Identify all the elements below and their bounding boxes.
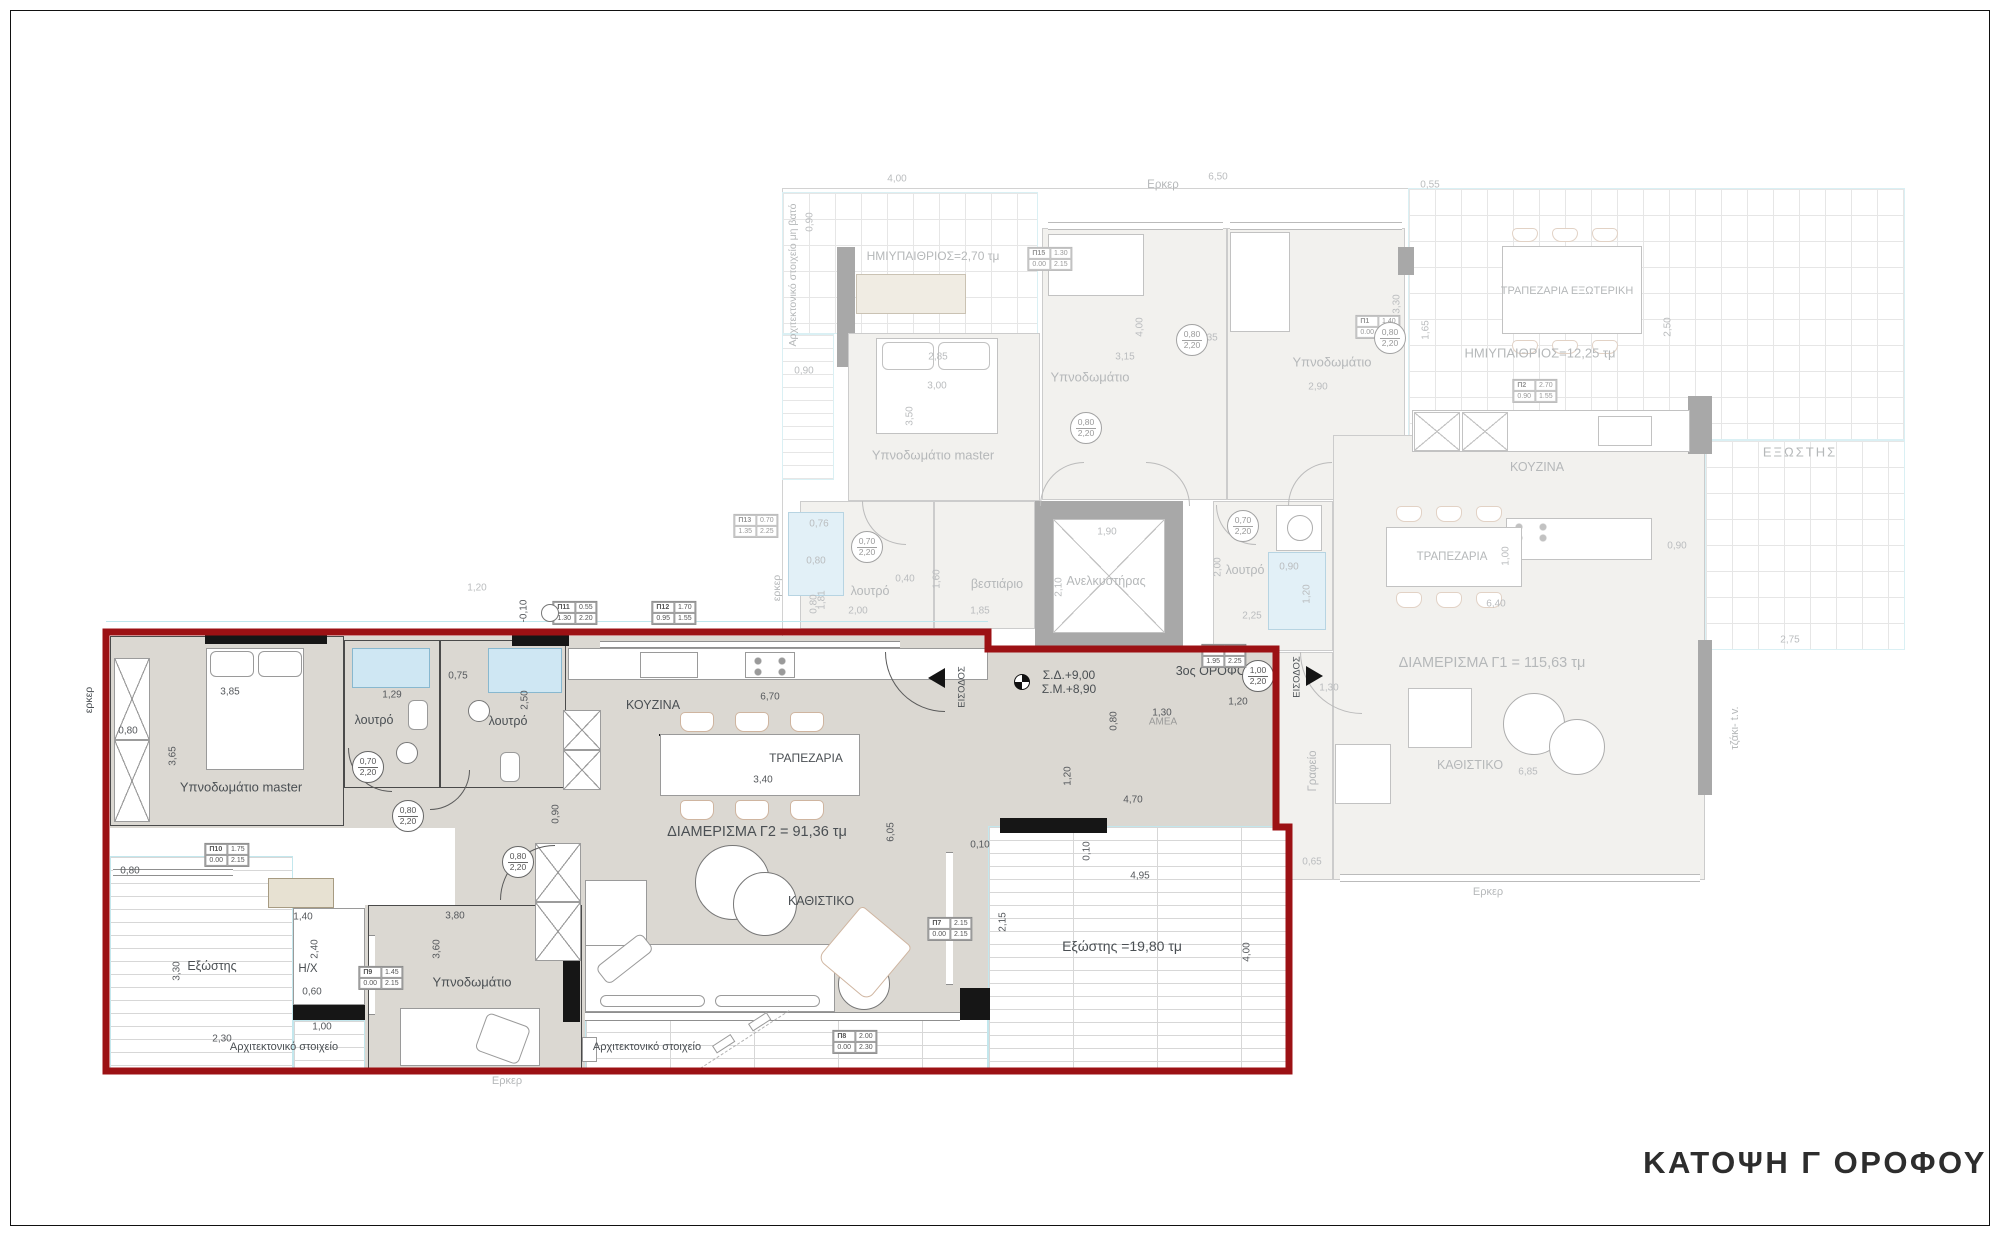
- label-entrance-g1: ΕΙΣΟΔΟΣ: [1292, 656, 1303, 697]
- dim: 0,10: [1082, 841, 1093, 860]
- sofa-cushion: [600, 995, 705, 1007]
- table-accent: [659, 734, 660, 736]
- wardrobe-master: [114, 740, 150, 822]
- dim: 0,10: [970, 840, 989, 851]
- pillow: [258, 651, 302, 677]
- chair: [735, 800, 769, 820]
- basin: [468, 700, 490, 722]
- label-arch-element-1: Αρχιτεκτονικό στοιχείο: [230, 1041, 338, 1053]
- planter-hx: [268, 878, 334, 908]
- label-g2-balcony-west: Εξώστης: [187, 959, 236, 973]
- window-tag: Π110.551.302.20: [552, 601, 597, 625]
- door-size-tag: 0,702,20: [352, 751, 384, 783]
- basin: [396, 742, 418, 764]
- label-arch-element-2: Αρχιτεκτονικό στοιχείο: [593, 1041, 701, 1053]
- dim: 3,60: [432, 939, 443, 958]
- label-level-sm: Σ.Μ.+8,90: [1042, 682, 1096, 696]
- dim: 1,29: [382, 690, 401, 701]
- label-g2-kitchen: ΚΟΥΖΙΝΑ: [626, 698, 680, 712]
- chair: [680, 712, 714, 732]
- label-level-sd: Σ.Δ.+9,00: [1043, 668, 1095, 682]
- dim: 3,80: [445, 911, 464, 922]
- label-hx: Η/Χ: [298, 963, 317, 975]
- dining-table-g2: [660, 734, 860, 796]
- wall-g2-hx-south: [293, 1005, 365, 1020]
- shower-g2-bath1: [352, 648, 430, 688]
- toilet: [500, 752, 520, 782]
- tall-unit: [563, 710, 601, 750]
- label-g2-area: ΔΙΑΜΕΡΙΣΜΑ Γ2 = 91,36 τμ: [667, 824, 847, 840]
- dim: 1,30: [1152, 708, 1171, 719]
- window-tag: Π72.150.002.15: [927, 917, 972, 941]
- dim: 2,50: [520, 690, 531, 709]
- wardrobe-bedroom: [535, 902, 581, 961]
- label-erker-west: ερκερ: [83, 687, 95, 714]
- entrance-arrow-g1: [1306, 666, 1323, 686]
- door-size-tag: 0,802,20: [502, 846, 534, 878]
- dim: 6,70: [760, 692, 779, 703]
- sofa-cushion: [715, 995, 820, 1007]
- shower-g2-bath2: [488, 648, 562, 693]
- label-entrance-g2: ΕΙΣΟΔΟΣ: [957, 666, 968, 707]
- pillar-living-se: [960, 988, 990, 1020]
- dim: 2,15: [998, 912, 1009, 931]
- dim: 1,00: [312, 1022, 331, 1033]
- chair: [680, 800, 714, 820]
- dim: 4,00: [1242, 942, 1253, 961]
- dim: 3,85: [220, 687, 239, 698]
- label-g2-dining: ΤΡΑΠΕΖΑΡΙΑ: [769, 751, 843, 765]
- chair: [790, 712, 824, 732]
- label-g2-bedroom: Υπνοδωμάτιο: [432, 975, 511, 990]
- window-tag: Π101.750.002.15: [204, 843, 249, 867]
- level-circle: [541, 604, 559, 622]
- dim: 1,20: [1063, 766, 1074, 785]
- window-tag: Π91.450.002.15: [358, 966, 403, 990]
- floor-plan-sheet: 4,00Ερκερ6,500,55ΗΜΙΥΠΑΙΘΡΙΟΣ=2,70 τμΤΡΑ…: [0, 0, 2000, 1236]
- chair: [735, 712, 769, 732]
- dim-level: -0,10: [519, 600, 530, 623]
- toilet: [408, 700, 428, 730]
- apartment-g2-layer: Υπνοδωμάτιο masterλουτρόλουτρόΚΟΥΖΙΝΑΤΡΑ…: [0, 0, 2000, 1236]
- dim: 0,90: [551, 804, 562, 823]
- label-g2-balcony-south: Εξώστης =19,80 τμ: [1062, 938, 1182, 954]
- dim: 3,30: [172, 961, 183, 980]
- dim: 4,95: [1130, 871, 1149, 882]
- kitchen-hob-g2: [745, 652, 795, 678]
- dim: 0,60: [302, 987, 321, 998]
- dim: 4,70: [1123, 795, 1142, 806]
- label-g2-living: ΚΑΘΙΣΤΙΚΟ: [788, 894, 854, 908]
- window-tag: Π121.700.951.55: [651, 601, 696, 625]
- dim: 0,80: [120, 866, 139, 877]
- label-g2-master-bedroom: Υπνοδωμάτιο master: [180, 780, 302, 795]
- dim: 1,20: [1228, 697, 1247, 708]
- window-tag: Π82.000.002.30: [832, 1030, 877, 1054]
- dim: 3,65: [168, 746, 179, 765]
- wall-g2-bedroom-divider: [563, 960, 580, 1022]
- kitchen-sink-g2: [640, 652, 698, 678]
- door-size-tag: 1,002,20: [1242, 660, 1274, 692]
- entrance-arrow-g2: [928, 668, 945, 688]
- dim: 2,30: [212, 1034, 231, 1045]
- wall-stair-south: [1000, 818, 1107, 833]
- window-tag: Π180.851.952.25: [1201, 644, 1246, 668]
- wall-g2-master-head: [205, 632, 327, 644]
- dim: 0,80: [1109, 711, 1120, 730]
- wall-g2-kitchen-west: [512, 632, 569, 646]
- chair: [790, 800, 824, 820]
- dim: 1,40: [293, 912, 312, 923]
- tall-unit: [563, 750, 601, 790]
- band-kitchen-window: [600, 641, 900, 648]
- dim: 0,80: [118, 726, 137, 737]
- dim: 3,40: [753, 775, 772, 786]
- pillow: [210, 651, 254, 677]
- door-size-tag: 0,802,20: [392, 800, 424, 832]
- dim: 2,40: [310, 939, 321, 958]
- label-g2-bath1: λουτρό: [355, 713, 394, 727]
- dim: 0,75: [448, 671, 467, 682]
- level-marker: [1014, 674, 1030, 690]
- dim: 6,05: [886, 822, 897, 841]
- label-g2-bath2: λουτρό: [489, 714, 528, 728]
- drawing-title: ΚΑΤΟΨΗ Γ ΟΡΟΦΟΥ: [1643, 1145, 1987, 1181]
